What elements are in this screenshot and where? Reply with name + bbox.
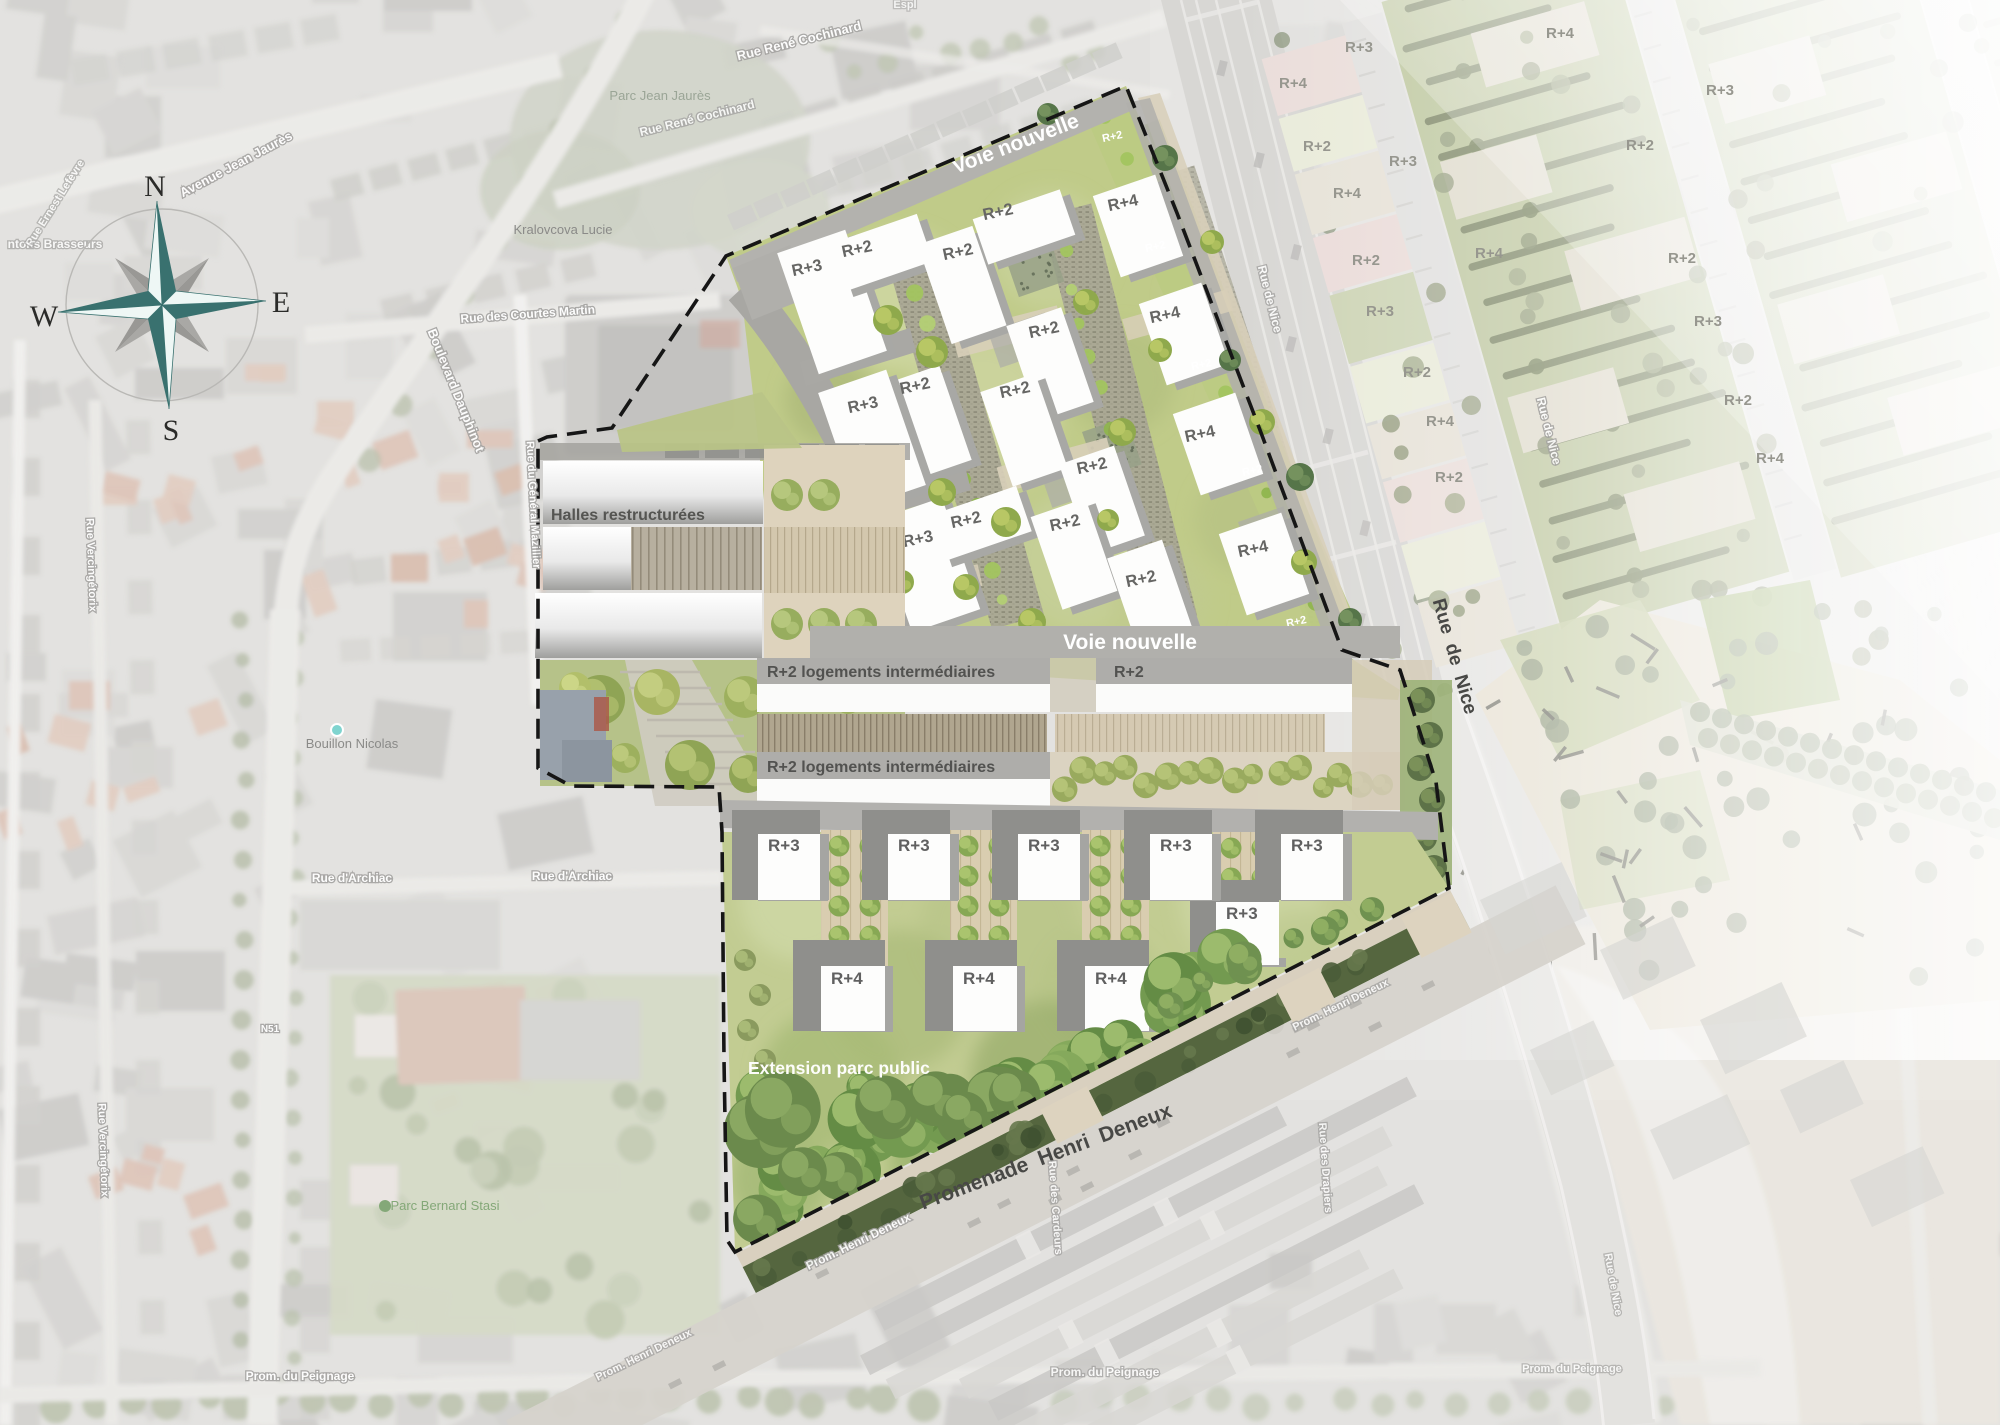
svg-text:R+2: R+2 bbox=[1668, 250, 1696, 267]
svg-text:Prom. du Peignage: Prom. du Peignage bbox=[246, 1369, 355, 1383]
svg-text:R+2: R+2 bbox=[1114, 664, 1144, 681]
svg-text:Bouillon Nicolas: Bouillon Nicolas bbox=[306, 736, 399, 751]
svg-text:N51: N51 bbox=[261, 1024, 280, 1035]
svg-text:R+4: R+4 bbox=[1756, 450, 1785, 467]
svg-text:R+2: R+2 bbox=[1303, 138, 1331, 155]
svg-text:W: W bbox=[30, 300, 59, 333]
svg-text:R+3: R+3 bbox=[768, 836, 800, 855]
svg-text:Prom. du Peignage: Prom. du Peignage bbox=[1051, 1365, 1160, 1379]
svg-text:R+2: R+2 bbox=[1724, 392, 1752, 409]
svg-text:R+4: R+4 bbox=[1333, 185, 1362, 202]
svg-text:R+3: R+3 bbox=[1706, 82, 1734, 99]
svg-text:R+3: R+3 bbox=[1345, 39, 1373, 56]
svg-text:R+3: R+3 bbox=[1160, 836, 1192, 855]
svg-text:S: S bbox=[163, 414, 180, 447]
svg-text:Voie nouvelle: Voie nouvelle bbox=[1063, 631, 1197, 654]
svg-text:R+2 logements intermédiaires: R+2 logements intermédiaires bbox=[767, 759, 995, 776]
svg-text:R+4: R+4 bbox=[1546, 25, 1575, 42]
svg-text:R+2: R+2 bbox=[1435, 469, 1463, 486]
svg-text:R+4: R+4 bbox=[831, 969, 863, 988]
svg-text:R+4: R+4 bbox=[1426, 413, 1455, 430]
svg-text:R+3: R+3 bbox=[1366, 303, 1394, 320]
svg-text:R+3: R+3 bbox=[1694, 313, 1722, 330]
svg-text:R+4: R+4 bbox=[1095, 969, 1127, 988]
svg-text:R+2 logements intermédiaires: R+2 logements intermédiaires bbox=[767, 664, 995, 681]
svg-text:R+3: R+3 bbox=[1389, 153, 1417, 170]
svg-text:R+3: R+3 bbox=[1291, 836, 1323, 855]
svg-text:R+3: R+3 bbox=[1028, 836, 1060, 855]
svg-text:R+4: R+4 bbox=[1475, 245, 1504, 262]
svg-text:R+3: R+3 bbox=[1226, 904, 1258, 923]
svg-text:Prom. du Peignage: Prom. du Peignage bbox=[1522, 1363, 1622, 1375]
svg-text:Extension parc public: Extension parc public bbox=[748, 1058, 930, 1078]
svg-text:R+4: R+4 bbox=[963, 969, 995, 988]
svg-text:R+2: R+2 bbox=[1352, 252, 1380, 269]
svg-text:E: E bbox=[272, 286, 290, 319]
svg-text:Parc Bernard Stasi: Parc Bernard Stasi bbox=[390, 1198, 499, 1213]
svg-text:Espl: Espl bbox=[893, 0, 916, 11]
svg-text:R+4: R+4 bbox=[1279, 75, 1308, 92]
svg-text:N: N bbox=[144, 170, 166, 203]
svg-text:R+2: R+2 bbox=[1626, 137, 1654, 154]
svg-text:R+3: R+3 bbox=[898, 836, 930, 855]
svg-text:Rue d'Archiac: Rue d'Archiac bbox=[532, 869, 613, 883]
svg-text:Rue d'Archiac: Rue d'Archiac bbox=[312, 871, 393, 885]
svg-text:Kralovcova Lucie: Kralovcova Lucie bbox=[514, 222, 613, 237]
svg-text:Parc Jean Jaurès: Parc Jean Jaurès bbox=[609, 88, 711, 103]
svg-text:Halles restructurées: Halles restructurées bbox=[551, 507, 705, 524]
svg-text:R+2: R+2 bbox=[1403, 364, 1431, 381]
